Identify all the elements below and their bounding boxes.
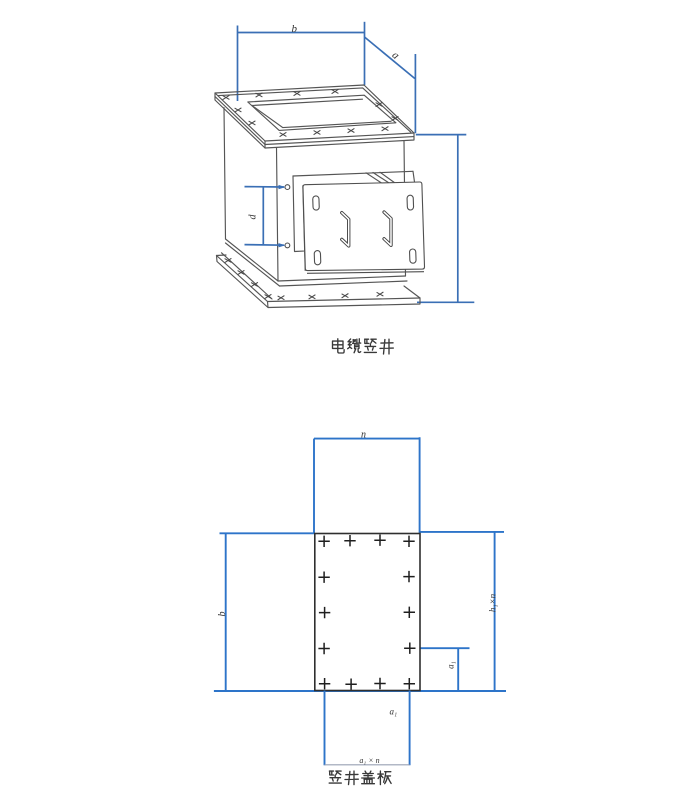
svg-text:a₁: a₁ — [446, 661, 456, 669]
svg-text:b: b — [292, 23, 298, 35]
svg-text:b: b — [217, 612, 228, 617]
svg-text:a₁ × n: a₁ × n — [359, 756, 379, 765]
svg-text:h₁×n: h₁×n — [488, 593, 498, 612]
svg-text:a₁: a₁ — [389, 707, 397, 717]
svg-text:n: n — [361, 430, 366, 441]
